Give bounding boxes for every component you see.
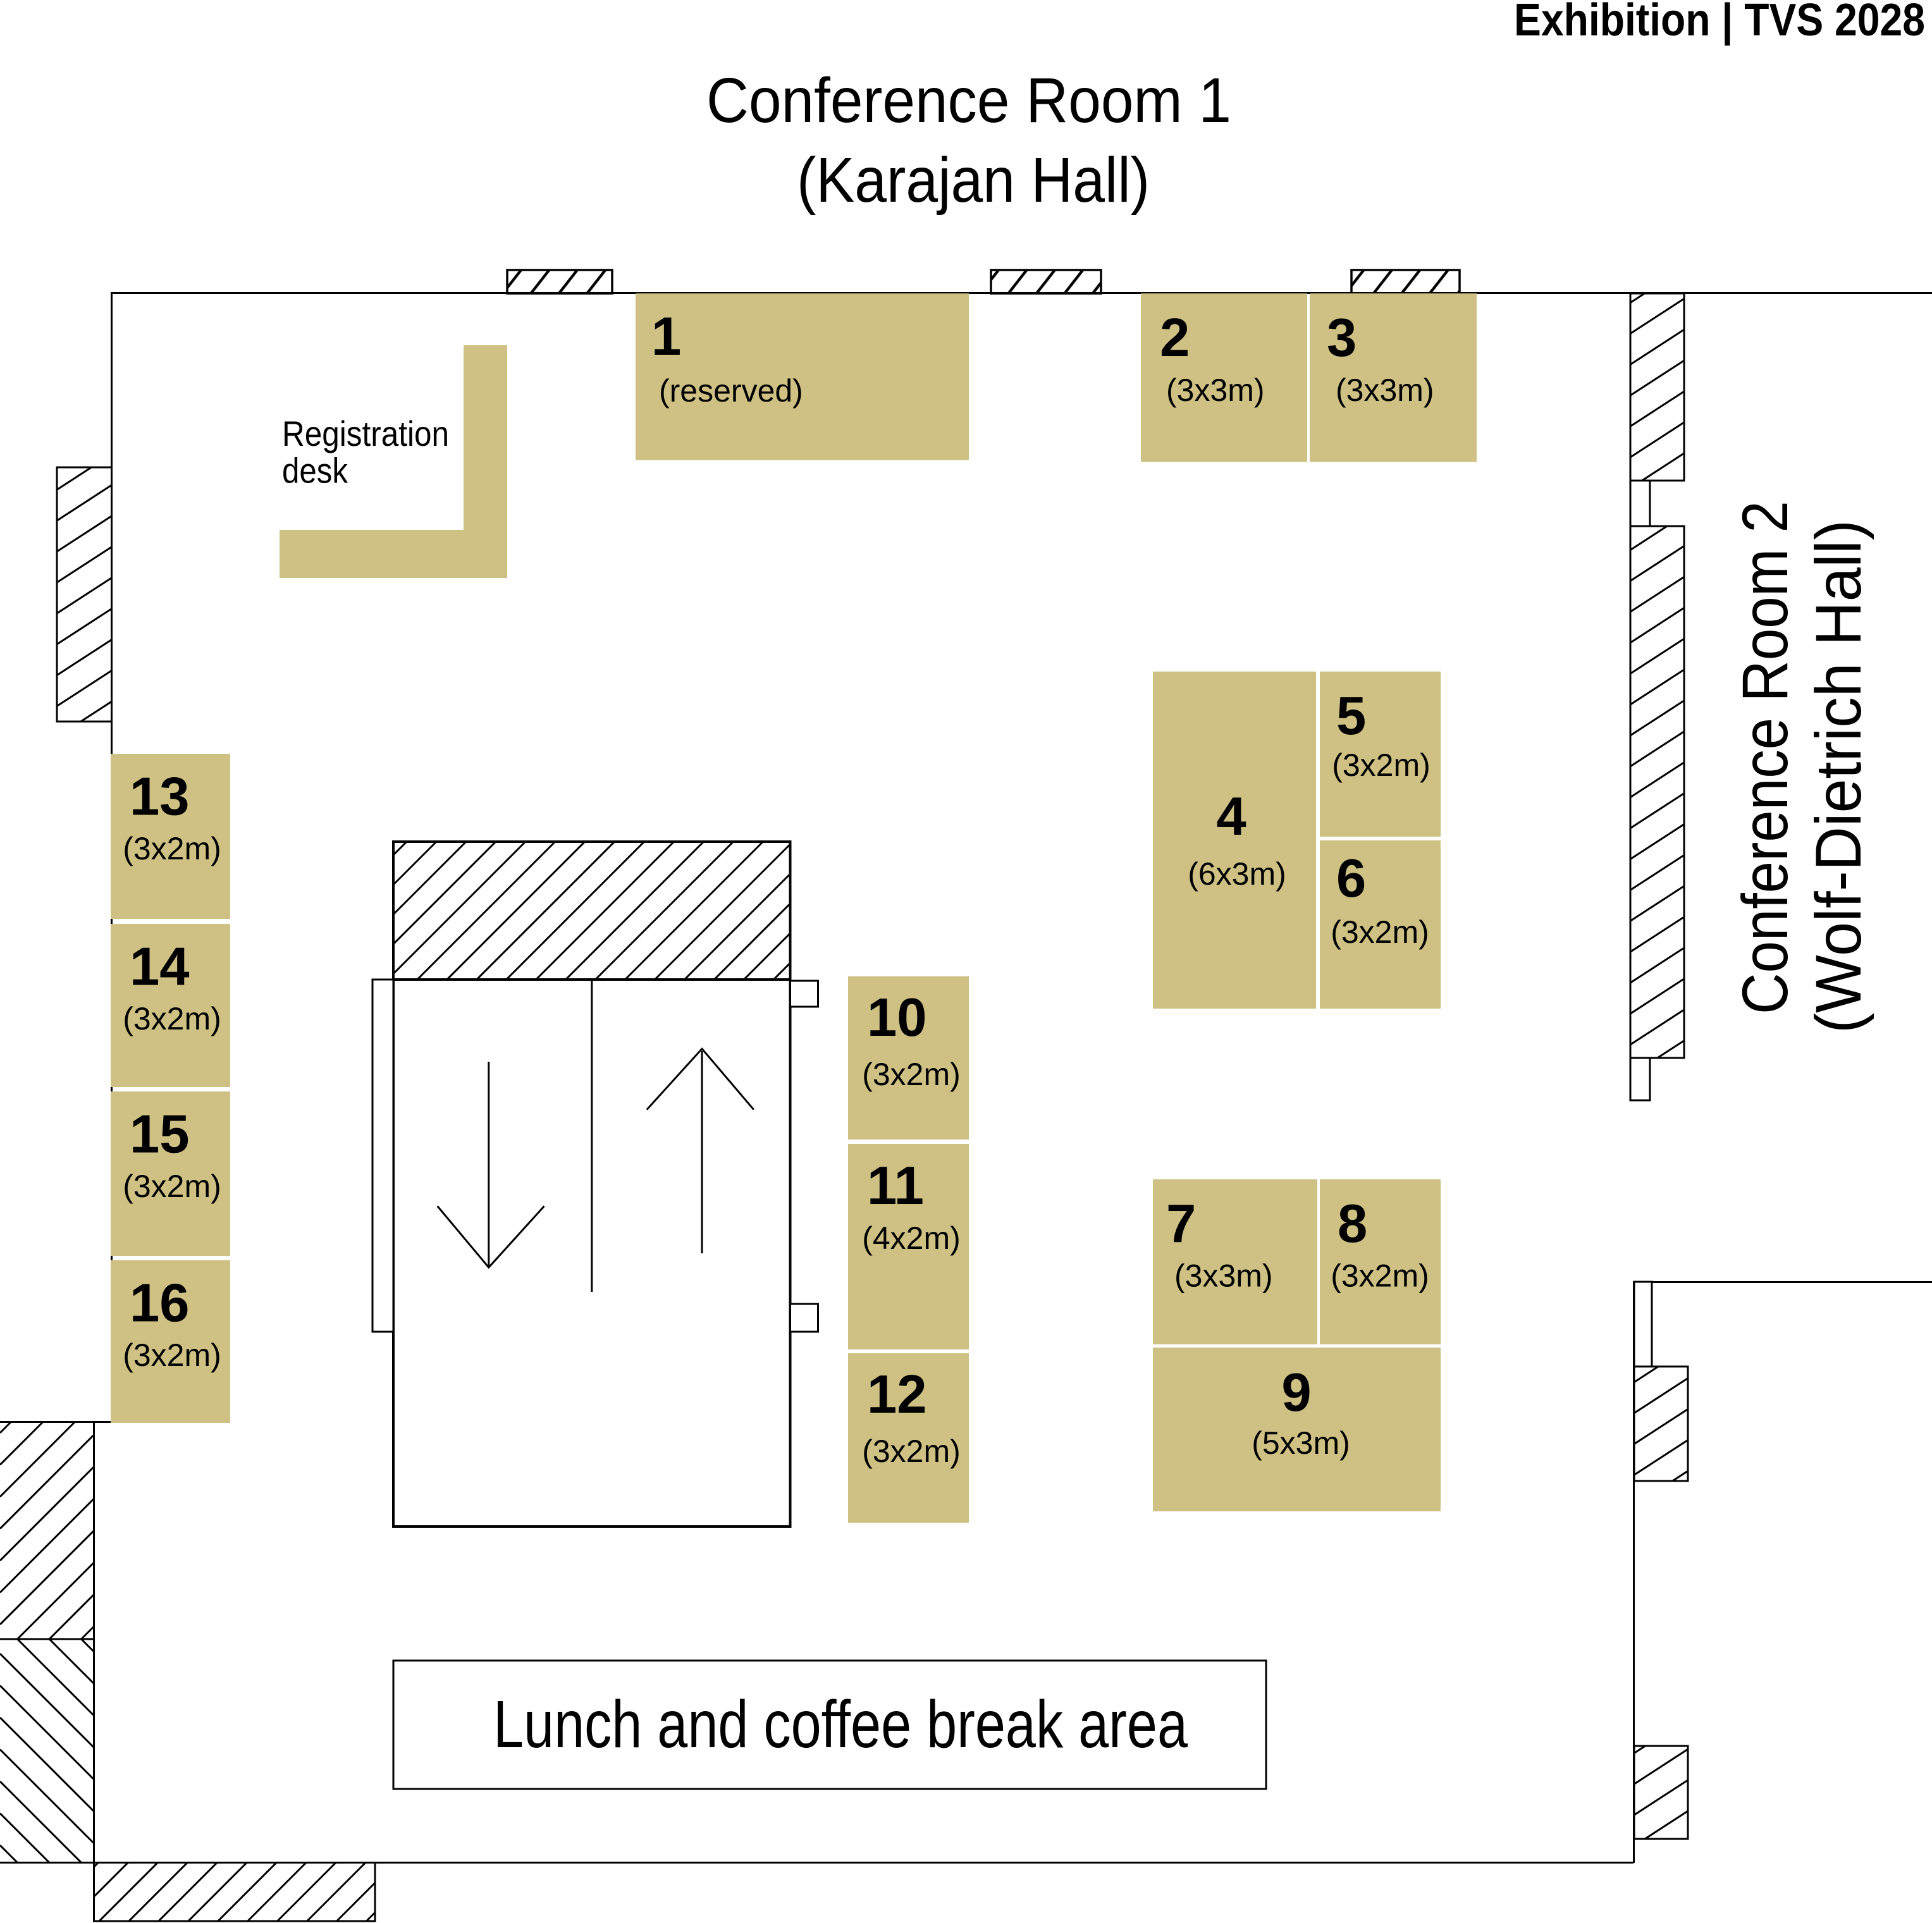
svg-text:(3x2m): (3x2m) (123, 1169, 221, 1204)
svg-text:Exhibition | TVS 2028: Exhibition | TVS 2028 (1514, 0, 1925, 46)
svg-text:(3x2m): (3x2m) (123, 1001, 221, 1036)
svg-text:(Karajan Hall): (Karajan Hall) (797, 145, 1150, 216)
svg-text:13: 13 (130, 767, 190, 827)
svg-text:Conference Room 2: Conference Room 2 (1729, 501, 1801, 1014)
svg-text:10: 10 (867, 988, 927, 1048)
svg-text:1: 1 (651, 307, 681, 367)
svg-text:(3x2m): (3x2m) (1331, 1258, 1429, 1294)
svg-text:12: 12 (867, 1365, 927, 1425)
svg-text:3: 3 (1327, 308, 1357, 368)
svg-text:16: 16 (130, 1274, 190, 1334)
svg-text:5: 5 (1336, 686, 1366, 746)
svg-text:(3x3m): (3x3m) (1336, 372, 1434, 408)
svg-text:desk: desk (282, 451, 348, 491)
svg-text:4: 4 (1216, 787, 1246, 847)
svg-text:8: 8 (1338, 1194, 1367, 1254)
svg-text:(reserved): (reserved) (659, 373, 803, 409)
svg-text:Registration: Registration (282, 414, 449, 453)
svg-text:(5x3m): (5x3m) (1252, 1425, 1350, 1461)
svg-text:(3x2m): (3x2m) (862, 1057, 961, 1092)
svg-text:7: 7 (1166, 1194, 1196, 1254)
svg-text:(Wolf-Dietrich Hall): (Wolf-Dietrich Hall) (1802, 520, 1874, 1033)
svg-text:(3x2m): (3x2m) (1332, 747, 1431, 783)
svg-text:(3x3m): (3x3m) (1166, 372, 1265, 408)
svg-text:(3x2m): (3x2m) (123, 1337, 221, 1373)
svg-text:11: 11 (867, 1156, 924, 1216)
svg-text:(4x2m): (4x2m) (862, 1220, 961, 1256)
svg-text:(3x2m): (3x2m) (1331, 914, 1429, 950)
svg-text:(3x3m): (3x3m) (1174, 1258, 1273, 1294)
svg-text:15: 15 (130, 1105, 190, 1165)
svg-text:(6x3m): (6x3m) (1188, 856, 1286, 892)
svg-text:2: 2 (1160, 308, 1190, 368)
svg-text:6: 6 (1336, 849, 1366, 909)
svg-text:(3x2m): (3x2m) (123, 831, 221, 866)
svg-text:Conference Room 1: Conference Room 1 (706, 65, 1231, 136)
svg-text:9: 9 (1281, 1363, 1311, 1423)
svg-text:14: 14 (130, 937, 190, 997)
svg-text:Lunch and coffee break area: Lunch and coffee break area (493, 1687, 1188, 1762)
svg-text:(3x2m): (3x2m) (862, 1434, 961, 1469)
